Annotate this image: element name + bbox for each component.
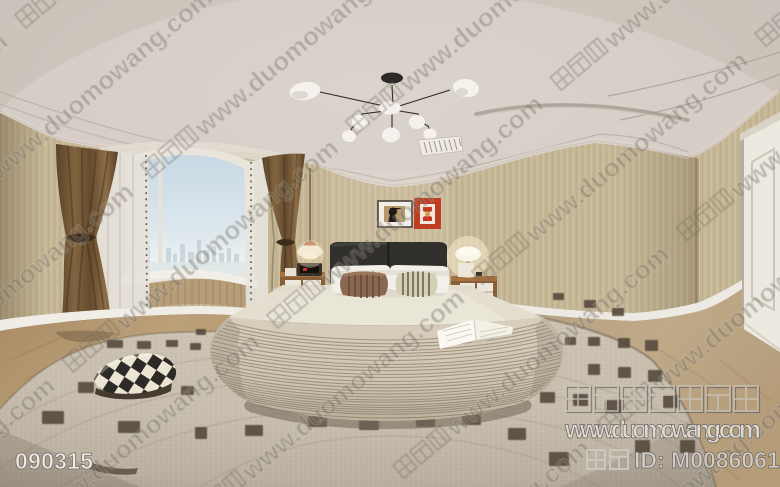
svg-text:090315: 090315 bbox=[15, 448, 93, 474]
svg-text:www.duomowang.com: www.duomowang.com bbox=[564, 416, 761, 444]
svg-text:ID: M0086061: ID: M0086061 bbox=[634, 447, 780, 473]
